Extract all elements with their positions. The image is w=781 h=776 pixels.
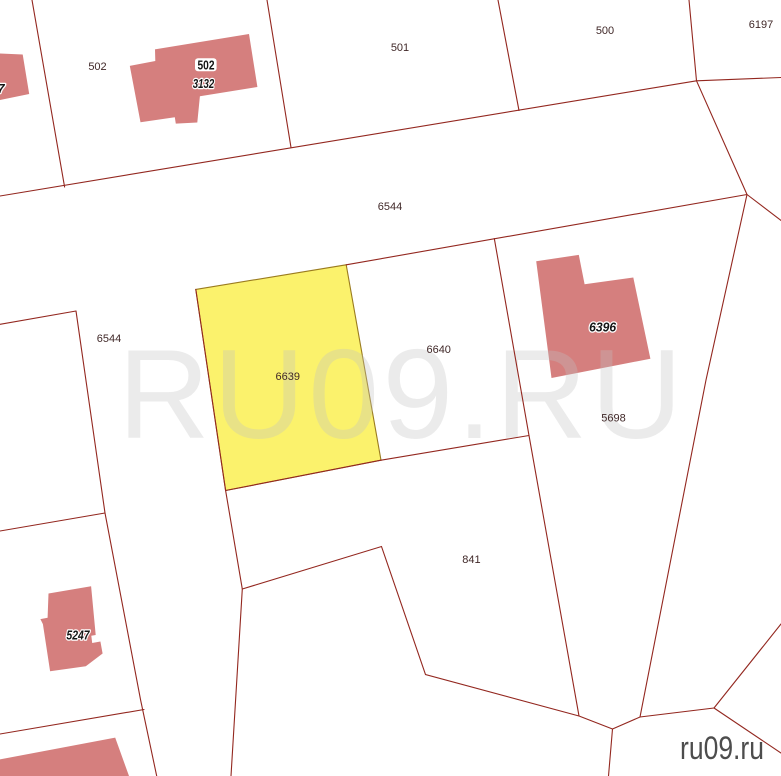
- svg-text:6544: 6544: [378, 201, 402, 213]
- svg-text:RU09.RU: RU09.RU: [118, 323, 686, 465]
- svg-text:ru09.ru: ru09.ru: [680, 730, 764, 766]
- svg-text:3132: 3132: [193, 76, 215, 91]
- svg-text:6640: 6640: [426, 344, 450, 356]
- svg-text:6544: 6544: [97, 333, 121, 345]
- svg-text:6197: 6197: [749, 19, 773, 31]
- svg-text:6639: 6639: [276, 371, 300, 383]
- svg-text:5247: 5247: [66, 628, 90, 643]
- svg-text:5698: 5698: [601, 413, 625, 425]
- svg-text:500: 500: [596, 25, 614, 37]
- svg-text:7: 7: [0, 81, 5, 96]
- svg-text:6396: 6396: [589, 320, 617, 335]
- svg-text:501: 501: [391, 42, 409, 54]
- svg-text:841: 841: [462, 554, 480, 566]
- svg-text:502: 502: [88, 61, 106, 73]
- svg-text:502: 502: [198, 58, 215, 73]
